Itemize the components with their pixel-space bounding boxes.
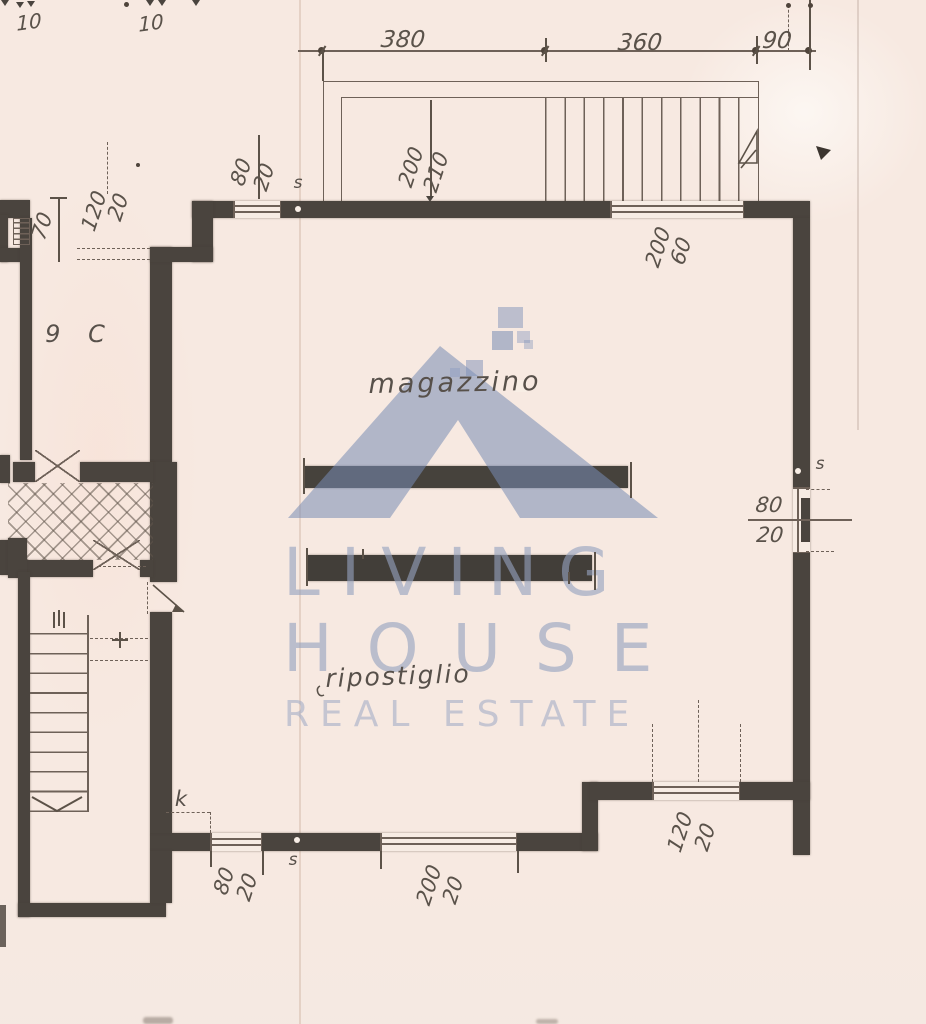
room-label-magazzino: magazzino (368, 366, 542, 400)
bar-end-tick (630, 462, 632, 498)
wall-corner-bridge (150, 247, 213, 262)
s-marker-dot (795, 468, 801, 474)
edge-partial-mark-a (143, 1017, 173, 1024)
s-label-top: s (294, 173, 303, 193)
dim-extension-line (517, 851, 519, 873)
interior-wall-bar-lower (308, 555, 592, 581)
window-bottom (380, 833, 517, 851)
door-threshold-dashed (77, 259, 150, 260)
wall-left-middle (150, 462, 177, 582)
door-swing-x (35, 450, 80, 482)
survey-tick-icon (146, 0, 154, 10)
wall-9c-left (20, 218, 32, 460)
wall-hatch-bottom-a (25, 560, 93, 577)
dim-extension-line (380, 851, 382, 869)
stair-hash-mark (53, 612, 55, 628)
dim-extension-line (262, 851, 264, 875)
dim-leader-dashed (107, 142, 108, 194)
dim-extension-line (58, 198, 60, 262)
dim-extension-dashed (698, 700, 699, 782)
s-label-right: s (816, 454, 825, 474)
wall-stairroom-right-low (150, 851, 172, 903)
dim-extension-dashed (740, 724, 741, 782)
dim-extension-line (210, 851, 212, 867)
dim-top-380: 380 (380, 27, 427, 53)
window-bottom-right (652, 782, 740, 800)
stair-treads-upper (545, 97, 757, 201)
scan-edge-smudge (0, 905, 6, 947)
dim-extension-line (322, 51, 324, 81)
bar-end-tick (594, 552, 596, 590)
k-door-dashed-line (210, 812, 211, 833)
handwriting-squiggle (317, 686, 324, 696)
fold-crease-line (299, 0, 301, 1024)
floor-plan-scan: 10 10 380 360 90 200 210 (0, 0, 926, 1024)
wall-stairroom-bottom (18, 903, 166, 917)
dim-offset-left-1: 10 (16, 8, 42, 36)
bar-mid-tick (568, 572, 570, 584)
stair-walkline-dashed (90, 660, 148, 661)
k-door-dashed-line (166, 812, 210, 813)
door-threshold-dashed (98, 566, 146, 567)
dim-top-90: 90 (761, 28, 793, 54)
edge-partial-mark-b (536, 1019, 558, 1024)
interior-wall-bar-upper (305, 466, 628, 488)
dim-chain-line (298, 50, 816, 52)
survey-dot (786, 3, 791, 8)
door-bottom (210, 833, 262, 851)
dim-extension-line (545, 38, 547, 62)
door-threshold-dashed (77, 248, 150, 249)
door-label-k: k (175, 787, 187, 811)
wall-9c-bottom-a (13, 462, 35, 482)
wall-left-upper (150, 247, 172, 462)
wall-left-lower (150, 612, 172, 833)
scan-edge-line-right (857, 0, 859, 430)
s-marker-dot (294, 837, 300, 843)
s-label-bottom: s (289, 850, 298, 870)
door-jamb-dashed (147, 582, 148, 614)
dim-cross (119, 632, 121, 648)
dim-win-br-120: 120 (663, 808, 698, 855)
s-marker-dot (295, 206, 301, 212)
print-artifact-arrow (816, 146, 831, 160)
dim-line-right-window (748, 519, 852, 521)
wall-stairroom-left (18, 572, 30, 917)
survey-tick-icon (1, 0, 9, 10)
dim-win-right-20: 20 (755, 523, 784, 547)
wall-hatch-bottom-b (140, 560, 153, 577)
window-top-small (233, 201, 281, 218)
room-label-9c: 9 C (45, 320, 115, 348)
dim-extension-dashed (806, 551, 834, 552)
bar-end-tick (303, 458, 305, 494)
dim-extension-line (756, 36, 758, 64)
window-top-big (610, 201, 744, 218)
watermark-real-estate: REAL ESTATE (284, 694, 640, 735)
survey-tick-icon (192, 0, 200, 10)
bar-mid-tick (362, 549, 364, 559)
dim-extension-dashed (806, 489, 830, 490)
wall-left-stub-a (0, 455, 10, 483)
dim-cross (50, 197, 67, 199)
dim-win-right-80: 80 (754, 493, 783, 517)
stair-hash-mark (58, 610, 60, 626)
stair-center-line (87, 615, 89, 812)
survey-dot (124, 2, 129, 7)
dim-top-360: 360 (617, 30, 664, 56)
paper-tint-bottom (0, 880, 926, 1024)
room-label-ripostiglio: ripostiglio (325, 659, 471, 693)
stair-hash-mark (63, 612, 65, 628)
wall-9c-bottom-b (80, 462, 153, 482)
ink-speck (136, 163, 140, 167)
stair-treads-lower (30, 615, 88, 812)
survey-dot (808, 3, 813, 8)
dim-extension-line (809, 0, 811, 70)
dim-offset-left-2: 10 (138, 9, 164, 37)
door-leaf-line (153, 585, 184, 612)
bar-end-tick (306, 548, 308, 586)
dim-extension-dashed (652, 724, 653, 782)
leader-arrow-icon (426, 196, 434, 206)
